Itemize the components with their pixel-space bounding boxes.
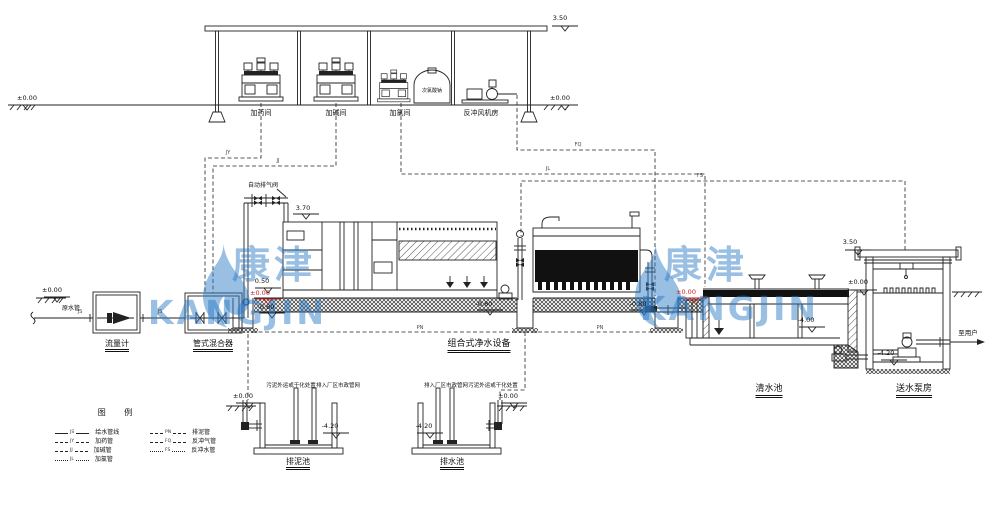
elevation-value: ±0.00 — [42, 287, 62, 294]
note-sludge-disposal: 污泥外运或干化处置 — [266, 384, 316, 390]
legend-row: PN 排泥管 — [150, 430, 210, 436]
elevation-value: 0.50 — [255, 278, 269, 285]
elevation-value: -4.20 — [878, 350, 895, 357]
pipe-code: PN — [597, 326, 604, 331]
elevation-value: ±0.00 — [498, 393, 518, 400]
pipe-code: FQ — [575, 143, 582, 148]
pump-station-label: 送水泵房 — [896, 385, 932, 398]
legend-label: 反冲气管 — [192, 439, 216, 445]
pipe-mixer-label: 管式混合器 — [193, 340, 233, 352]
legend-row: FS 反冲水管 — [150, 448, 215, 454]
drain-pit-label: 排水池 — [440, 458, 464, 470]
legend-label: 给水管线 — [95, 430, 119, 436]
legend-row: JJ 加碱管 — [55, 448, 112, 454]
elevation-value: ±0.00 — [550, 95, 570, 102]
pipe-code: PN — [417, 326, 424, 331]
legend-label: 排泥管 — [192, 430, 210, 436]
sludge-pit-label: 排泥池 — [286, 458, 310, 470]
legend-row: JY 加药管 — [55, 439, 113, 445]
room-label-dosing: 加药间 — [251, 110, 272, 117]
room-label-blower: 反冲风机房 — [464, 110, 499, 117]
pipe-code: JY — [226, 151, 231, 156]
legend-line-sample — [55, 451, 68, 452]
legend-row: JL 加氯管 — [55, 457, 113, 463]
elevation-value: -4.20 — [322, 423, 339, 430]
main-unit-label: 组合式净水设备 — [447, 340, 510, 353]
elevation-value: -0.80 — [630, 301, 647, 308]
legend-line-sample — [55, 460, 68, 461]
elevation-value: -4.00 — [798, 317, 815, 324]
legend-row: FQ 反冲气管 — [150, 439, 216, 445]
legend-label: 加碱管 — [94, 448, 112, 454]
hypochlorite-tank-label: 次氯酸钠 — [422, 89, 442, 94]
pipe-code: FS — [697, 174, 703, 179]
elevation-value: 3.70 — [296, 205, 310, 212]
legend-title: 图 例 — [98, 409, 141, 417]
elevation-value: ±0.00 — [676, 289, 696, 296]
legend-line-sample — [55, 433, 68, 434]
legend-label: 加氯管 — [95, 457, 113, 463]
process-flow-drawing: 康津 KANGJIN 康津 KANGJIN 加药间 加碱间 加氯间 反冲风机房 … — [0, 0, 1000, 519]
elevation-value: ±0.00 — [17, 95, 37, 102]
pipe-code: JJ — [277, 159, 280, 164]
note-municipal: 排入厂区市政管网 — [316, 384, 360, 390]
flow-meter-label: 流量计 — [105, 340, 129, 352]
legend-label: 加药管 — [95, 439, 113, 445]
elevation-value: 3.50 — [843, 239, 857, 246]
air-release-valve-label: 自动排气阀 — [248, 183, 278, 189]
legend-line-sample — [150, 433, 163, 434]
pipe-code: JS — [158, 310, 163, 315]
note-sludge-disposal: 污泥外运或干化处置 — [468, 384, 518, 390]
room-label-alkali: 加碱间 — [326, 110, 347, 117]
pipe-code: JS — [78, 310, 83, 315]
elevation-value: ±0.00 — [233, 393, 253, 400]
legend-line-sample — [150, 442, 163, 443]
legend-label: 反冲水管 — [191, 448, 215, 454]
elevation-value: ±0.00 — [250, 290, 270, 297]
elevation-value: ±0.00 — [848, 279, 868, 286]
elevation-value: -4.20 — [416, 423, 433, 430]
clear-water-tank-label: 清水池 — [755, 385, 782, 398]
legend-line-sample — [55, 442, 68, 443]
outlet-to-users-label: 至用户 — [958, 330, 978, 337]
legend-line-sample — [150, 451, 163, 452]
elevation-value: 3.50 — [553, 15, 567, 22]
note-municipal: 排入厂区市政管网 — [424, 384, 468, 390]
elevation-value: -0.80 — [258, 304, 275, 311]
elevation-value: -0.80 — [476, 301, 493, 308]
room-label-chlorine: 加氯间 — [390, 110, 411, 117]
legend-row: JS 给水管线 — [55, 430, 119, 436]
pipe-code: JL — [546, 167, 550, 172]
